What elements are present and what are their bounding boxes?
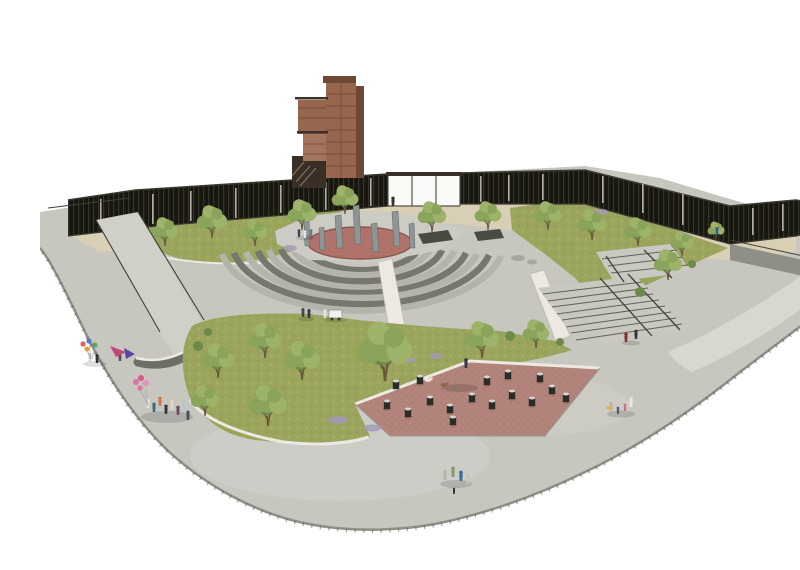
person [186,411,189,420]
person [443,470,447,480]
pavilion-roof-beam [386,172,462,176]
dog-walker [464,358,468,368]
bollard [483,376,491,387]
person [451,467,455,477]
people-monument-trio [296,229,314,240]
person [323,309,326,318]
stele [319,227,325,250]
bollard [383,400,391,411]
person [152,403,155,412]
person [170,400,173,409]
person [624,333,627,342]
tower-wing-lower [303,134,326,161]
person [459,471,463,481]
bollard [548,385,556,396]
person [298,229,301,237]
person [304,230,307,238]
glass-pavilion [386,172,462,206]
stele [409,223,415,248]
person [634,330,637,339]
person [301,308,304,317]
person [609,402,613,412]
glass-wall [388,176,460,206]
vendor-cart [329,310,342,318]
bollard [449,416,457,427]
person [95,354,98,363]
person-child [617,407,620,414]
tower-wing-upper [298,100,326,134]
rock [527,260,537,265]
person [466,474,470,484]
tower-cap [323,76,356,83]
bollard [562,393,570,404]
helmet [716,225,718,227]
tower-balcony-rail [295,97,328,100]
rock [511,255,525,261]
lavender-bed [328,416,348,424]
bollard [488,400,496,411]
bollard [528,397,536,408]
person-child [624,404,627,411]
bollard [508,390,516,401]
bollard [536,373,544,384]
site-plan-svg: Memorial plaza park – aerial architectur… [40,16,800,554]
person [158,397,161,406]
person [182,401,185,410]
cart-wheel [338,318,341,321]
bollard [416,375,424,386]
person [307,309,310,318]
bollard [404,408,412,419]
lavender-bed [429,353,443,359]
tower-balcony-rail [297,131,328,134]
yellow-bag [606,406,609,409]
person [629,397,633,407]
person-child [453,488,455,494]
cart-wheel [331,318,334,321]
statue-figure [391,197,394,206]
lavender-bed [283,245,297,251]
person [310,229,313,237]
person [164,405,167,414]
tower-mast [356,86,364,178]
architectural-rendering: Memorial plaza park – aerial architectur… [40,16,800,554]
bollard [426,396,434,407]
bollard [468,393,476,404]
bollard [446,404,454,415]
bollard [504,370,512,381]
person [176,406,179,415]
bollard [392,380,400,391]
